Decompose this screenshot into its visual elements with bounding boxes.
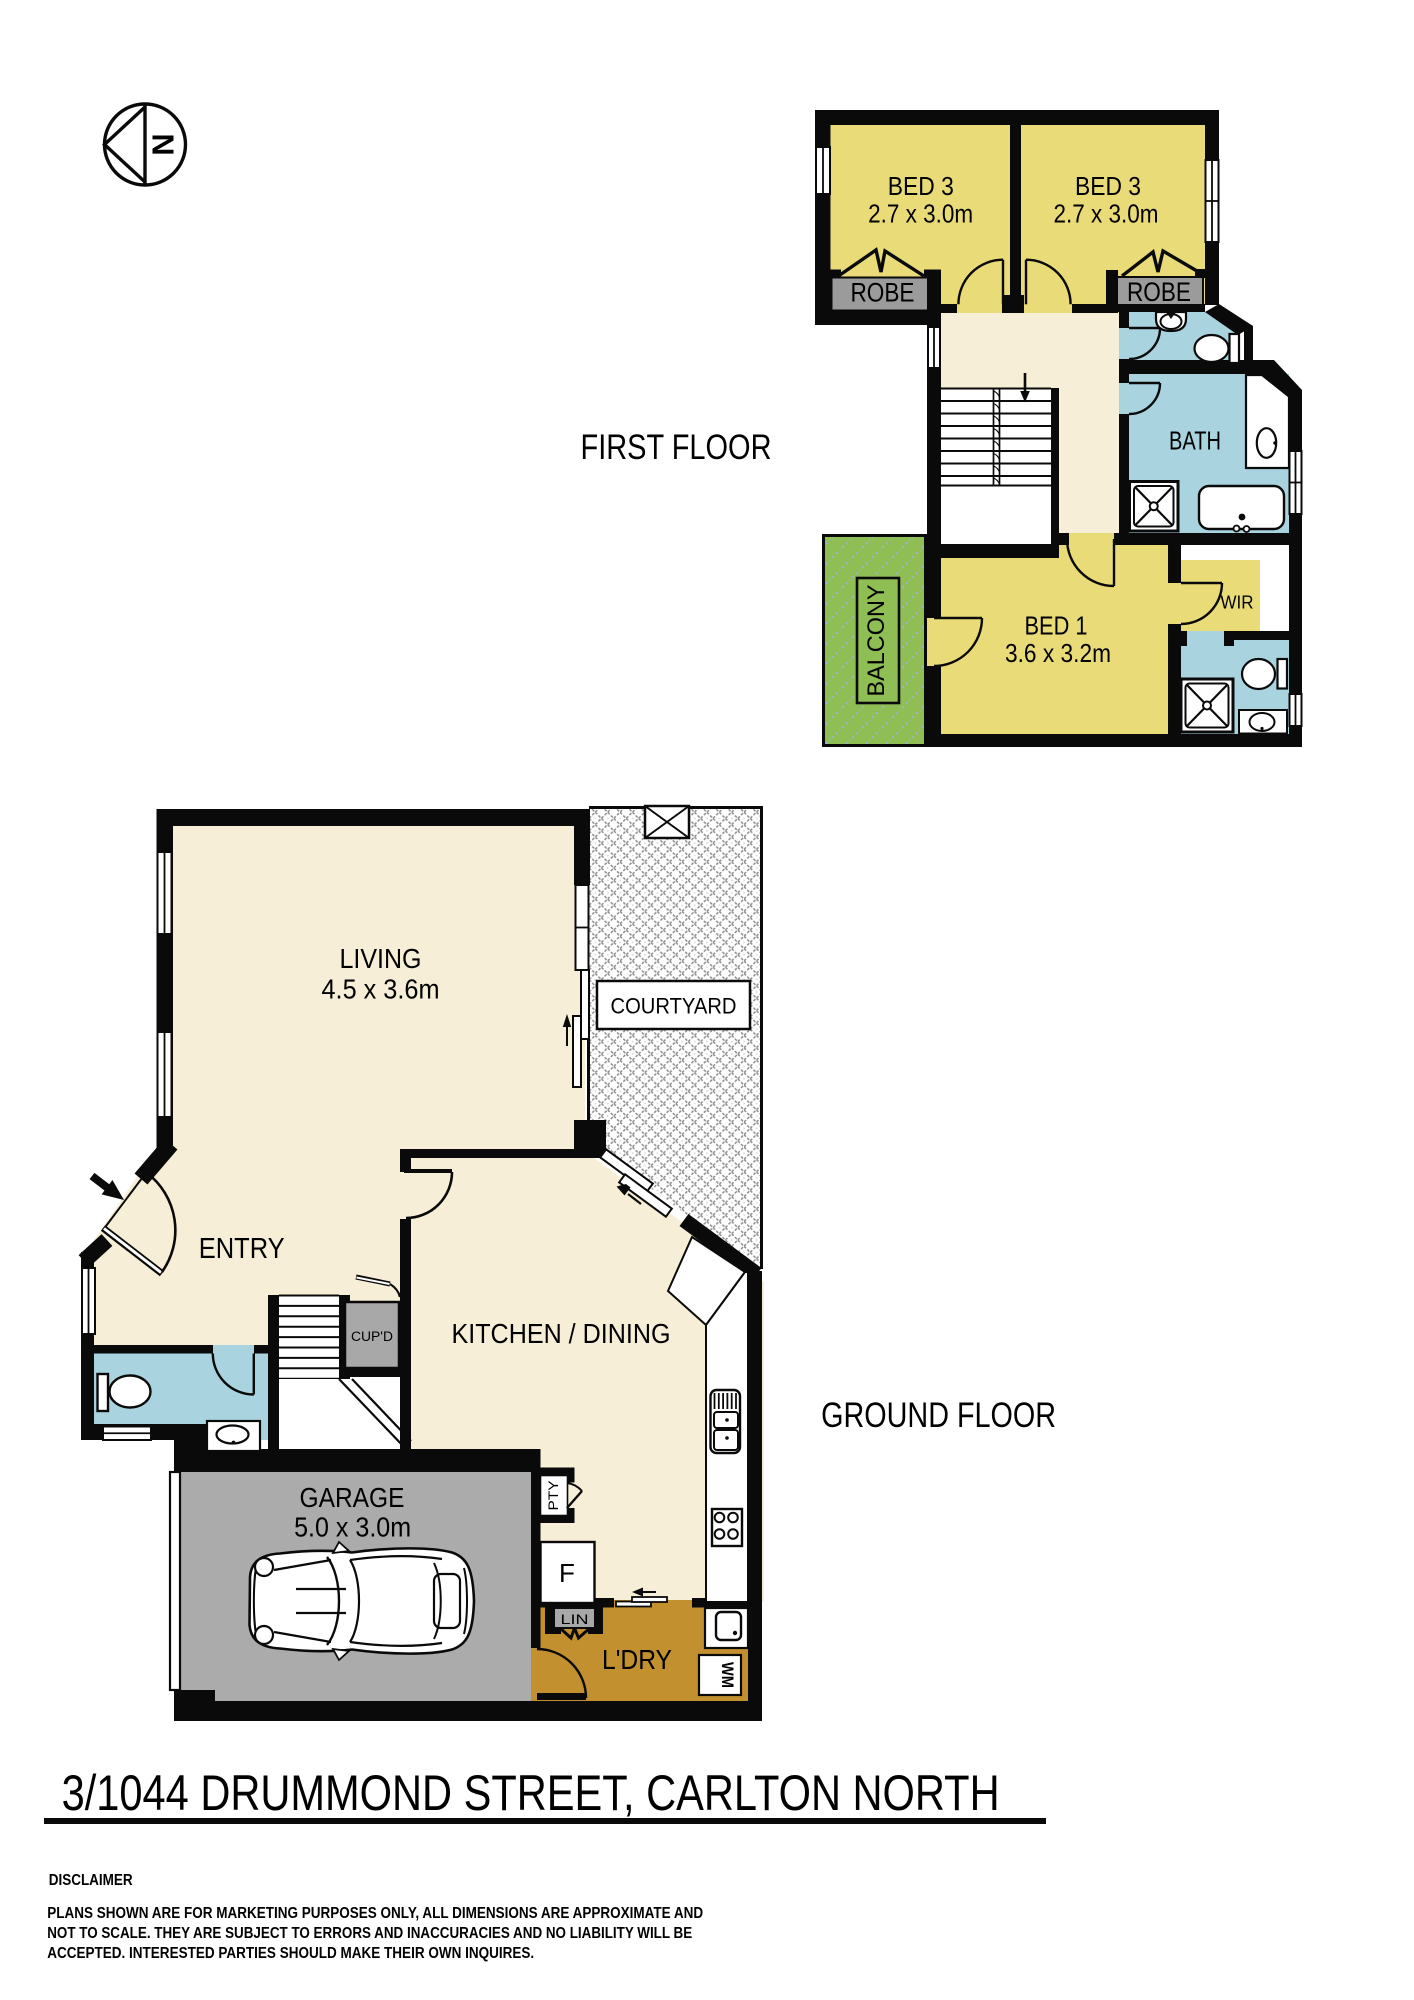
svg-text:BED 3: BED 3 bbox=[1075, 171, 1141, 201]
svg-text:3/1044 DRUMMOND STREET, CARLTO: 3/1044 DRUMMOND STREET, CARLTON NORTH bbox=[62, 1765, 1000, 1821]
svg-text:BED 3: BED 3 bbox=[888, 171, 954, 201]
svg-text:KITCHEN / DINING: KITCHEN / DINING bbox=[452, 1318, 671, 1349]
svg-text:PLANS SHOWN ARE FOR MARKETING: PLANS SHOWN ARE FOR MARKETING PURPOSES O… bbox=[47, 1905, 703, 1922]
svg-text:NOT TO SCALE. THEY ARE SUBJECT: NOT TO SCALE. THEY ARE SUBJECT TO ERRORS… bbox=[47, 1925, 692, 1942]
svg-text:2.7 x 3.0m: 2.7 x 3.0m bbox=[868, 199, 973, 229]
svg-text:GARAGE: GARAGE bbox=[300, 1482, 405, 1513]
svg-text:L'DRY: L'DRY bbox=[602, 1644, 672, 1675]
svg-text:ROBE: ROBE bbox=[851, 278, 915, 308]
svg-text:F: F bbox=[559, 1558, 575, 1588]
svg-text:LIVING: LIVING bbox=[340, 943, 422, 974]
svg-text:LIN: LIN bbox=[561, 1612, 589, 1627]
svg-text:5.0 x 3.0m: 5.0 x 3.0m bbox=[294, 1512, 411, 1543]
svg-text:CUP'D: CUP'D bbox=[351, 1329, 393, 1344]
svg-text:BATH: BATH bbox=[1169, 426, 1221, 456]
svg-text:ACCEPTED. INTERESTED PARTIES S: ACCEPTED. INTERESTED PARTIES SHOULD MAKE… bbox=[47, 1945, 534, 1962]
svg-text:ENTRY: ENTRY bbox=[199, 1233, 285, 1265]
svg-text:ROBE: ROBE bbox=[1127, 277, 1191, 307]
svg-text:PTY: PTY bbox=[546, 1481, 561, 1511]
svg-text:4.5 x 3.6m: 4.5 x 3.6m bbox=[322, 974, 440, 1005]
svg-text:COURTYARD: COURTYARD bbox=[611, 994, 737, 1019]
svg-text:BED 1: BED 1 bbox=[1025, 611, 1088, 641]
svg-text:DISCLAIMER: DISCLAIMER bbox=[49, 1872, 133, 1889]
svg-text:3.6 x 3.2m: 3.6 x 3.2m bbox=[1005, 638, 1111, 668]
svg-text:N: N bbox=[146, 133, 181, 155]
svg-text:WIR: WIR bbox=[1221, 593, 1254, 613]
svg-text:FIRST FLOOR: FIRST FLOOR bbox=[581, 428, 772, 467]
svg-text:2.7 x 3.0m: 2.7 x 3.0m bbox=[1054, 199, 1159, 229]
svg-text:GROUND FLOOR: GROUND FLOOR bbox=[821, 1396, 1056, 1435]
svg-text:BALCONY: BALCONY bbox=[863, 585, 890, 697]
svg-text:WM: WM bbox=[718, 1662, 737, 1688]
